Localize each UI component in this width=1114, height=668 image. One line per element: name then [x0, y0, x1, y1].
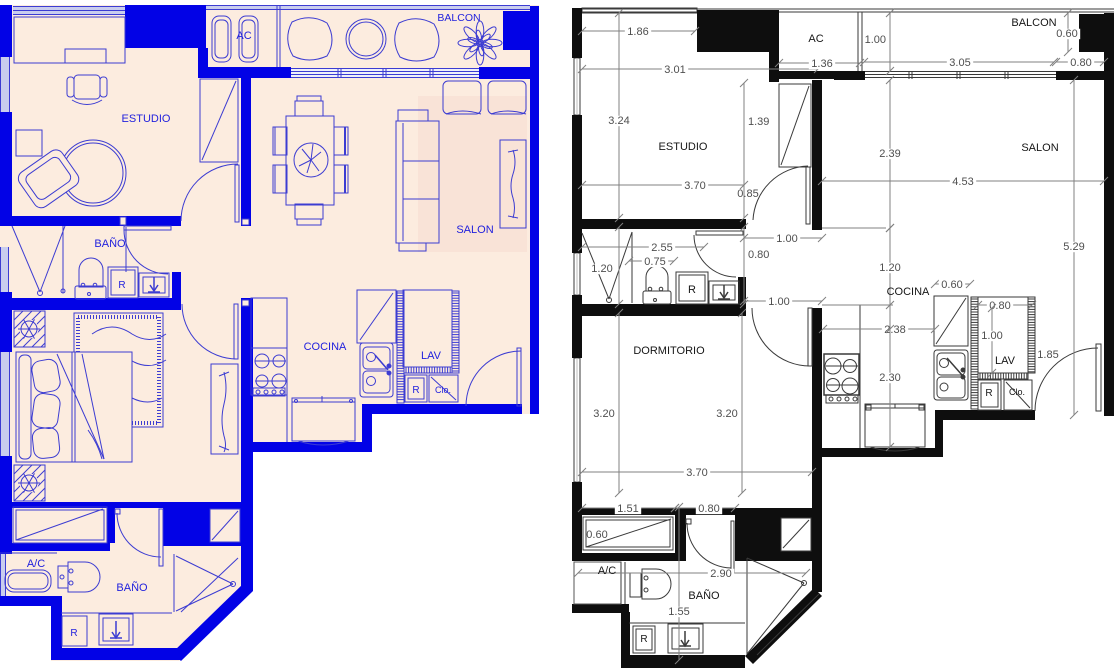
- svg-text:4.53: 4.53: [952, 176, 973, 188]
- svg-text:BALCON: BALCON: [437, 12, 480, 24]
- svg-text:1.00: 1.00: [865, 34, 886, 46]
- svg-text:R: R: [688, 284, 696, 296]
- svg-text:AC: AC: [808, 33, 823, 45]
- svg-text:2.90: 2.90: [710, 568, 731, 580]
- svg-text:R: R: [118, 280, 125, 291]
- svg-text:2.30: 2.30: [879, 372, 900, 384]
- svg-text:1.39: 1.39: [748, 116, 769, 128]
- svg-text:R: R: [985, 388, 992, 399]
- svg-text:1.55: 1.55: [668, 606, 689, 618]
- svg-text:1.20: 1.20: [879, 262, 900, 274]
- svg-text:COCINA: COCINA: [887, 286, 930, 298]
- svg-text:A/C: A/C: [598, 565, 616, 577]
- svg-text:COCINA: COCINA: [304, 341, 347, 353]
- svg-text:A/C: A/C: [27, 558, 45, 570]
- svg-text:2.55: 2.55: [651, 242, 672, 254]
- svg-text:1.36: 1.36: [811, 58, 832, 70]
- svg-text:3.70: 3.70: [684, 180, 705, 192]
- svg-text:0.80: 0.80: [1070, 57, 1091, 69]
- svg-text:2.38: 2.38: [884, 324, 905, 336]
- svg-text:R: R: [640, 634, 647, 645]
- svg-text:1.00: 1.00: [768, 296, 789, 308]
- svg-text:1.00: 1.00: [776, 233, 797, 245]
- svg-text:0.80: 0.80: [698, 503, 719, 515]
- svg-text:R: R: [70, 628, 77, 639]
- svg-text:R: R: [412, 385, 419, 396]
- svg-text:DORMITORIO: DORMITORIO: [633, 345, 705, 357]
- svg-text:1.51: 1.51: [617, 503, 638, 515]
- svg-text:BALCON: BALCON: [1011, 17, 1056, 29]
- svg-text:3.20: 3.20: [593, 408, 614, 420]
- svg-text:BAÑO: BAÑO: [688, 589, 720, 602]
- svg-text:2.39: 2.39: [879, 148, 900, 160]
- svg-text:3.20: 3.20: [716, 408, 737, 420]
- svg-text:3.05: 3.05: [949, 57, 970, 69]
- svg-text:1.20: 1.20: [591, 263, 612, 275]
- svg-text:1.85: 1.85: [1037, 349, 1058, 361]
- svg-text:AC: AC: [236, 30, 251, 42]
- svg-text:3.70: 3.70: [686, 467, 707, 479]
- svg-text:SALON: SALON: [1021, 142, 1058, 154]
- svg-text:5.29: 5.29: [1063, 241, 1084, 253]
- svg-text:0.60: 0.60: [1056, 28, 1077, 40]
- svg-text:ESTUDIO: ESTUDIO: [122, 113, 171, 125]
- svg-text:BAÑO: BAÑO: [116, 581, 148, 594]
- svg-text:1.86: 1.86: [627, 26, 648, 38]
- svg-text:0.80: 0.80: [748, 249, 769, 261]
- svg-text:Clo.: Clo.: [1009, 387, 1025, 397]
- svg-text:0.60: 0.60: [941, 279, 962, 291]
- svg-text:LAV: LAV: [995, 355, 1016, 367]
- svg-text:BAÑO: BAÑO: [94, 237, 126, 250]
- svg-text:LAV: LAV: [421, 350, 442, 362]
- svg-text:SALON: SALON: [456, 224, 493, 236]
- svg-text:0.60: 0.60: [586, 529, 607, 541]
- svg-text:0.75: 0.75: [644, 256, 665, 268]
- svg-text:0.85: 0.85: [737, 188, 758, 200]
- svg-text:Clo.: Clo.: [435, 385, 451, 395]
- svg-text:3.01: 3.01: [664, 64, 685, 76]
- svg-text:1.00: 1.00: [981, 330, 1002, 342]
- svg-text:0.80: 0.80: [989, 300, 1010, 312]
- svg-text:3.24: 3.24: [608, 115, 629, 127]
- svg-text:ESTUDIO: ESTUDIO: [659, 141, 708, 153]
